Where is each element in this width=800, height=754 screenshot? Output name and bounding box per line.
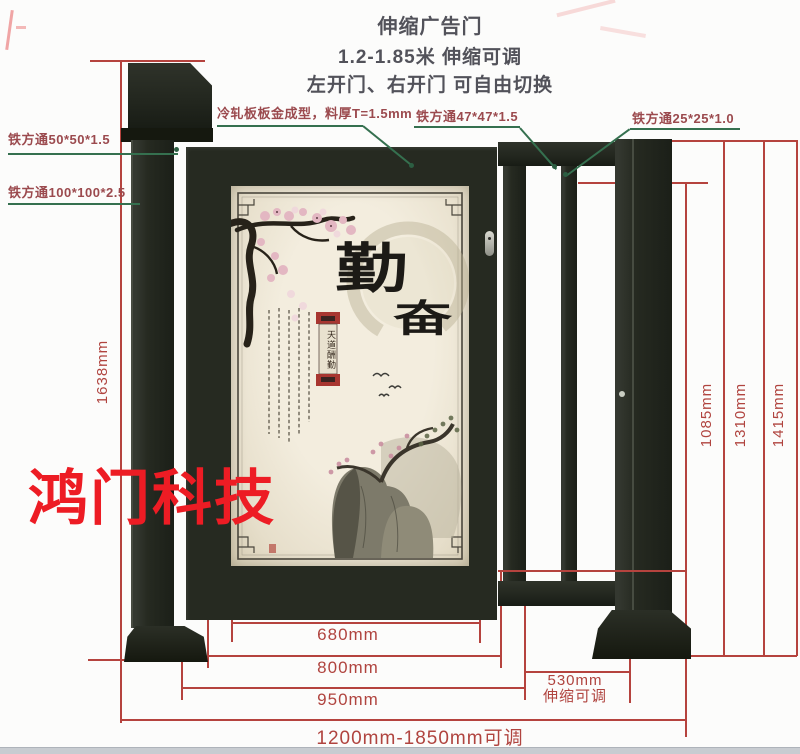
dim-frame-height: 1310mm [731,375,751,455]
label-panel: 冷轧板板金成型，料厚T=1.5mm [217,103,412,122]
leader-tube25-h [630,128,740,130]
dimline-right-edge [796,142,798,656]
right-post-seam [632,139,634,625]
dim-telescopic-width: 530mm [523,673,627,689]
dimtick-right-bottom [683,655,797,657]
leader-dot-tube50 [174,147,179,152]
dimline-1310 [723,142,725,656]
watermark-text: 鸿门科技 [28,450,358,537]
door-lock [485,231,494,256]
right-post-base [592,610,691,659]
seal-mark [269,544,276,553]
birds [373,374,401,397]
dim-poster-width: 680mm [298,625,398,645]
dimtick-left-bottom [88,659,128,661]
calligraphy-columns [269,308,309,442]
artifact-mark [16,26,26,29]
slide-bar-2 [561,166,577,586]
dimline-total-range [120,719,686,721]
dimline-680 [232,622,480,624]
dimline-1415 [763,142,765,656]
label-tube47: 铁方通47*47*1.5 [416,106,518,125]
left-post [131,140,174,628]
dim-total-height: 1415mm [769,375,789,455]
dimline-leaf-bottom-ref [498,570,686,572]
right-post [615,139,672,625]
ribbon-text: 天道酬勤 [318,325,338,375]
dimline-left-vertical [120,62,122,723]
post-bolt [619,391,625,397]
dim-leaf-width: 950mm [298,690,398,710]
range-subtitle: 1.2-1.85米 伸缩可调 [230,42,630,69]
dim-inner-height: 1085mm [697,375,717,455]
leader-panel-h [217,125,363,127]
artifact-mark [5,10,14,50]
dim-left-height: 1638mm [93,332,113,412]
leader-dot-tube25 [563,172,568,177]
advertising-gate-diagram: 伸缩广告门 1.2-1.85米 伸缩可调 左开门、右开门 可自由切换 [0,0,800,754]
slide-top-rail [498,142,618,166]
poster-char-sub: 奋 [393,288,452,342]
dimtick-right-top [668,140,798,142]
dim-telescopic-note: 伸缩可调 [523,689,627,705]
dimtick-left-top [90,60,205,62]
dimline-800 [208,655,501,657]
dim-total-range: 1200mm-1850mm可调 [300,723,540,750]
leader-dot-tube47 [552,164,557,169]
leader-dot-panel [409,163,414,168]
leader-tube50 [8,153,178,155]
dimline-950 [182,687,525,689]
slide-bar-1 [503,166,526,586]
motor-box [128,63,212,129]
slide-bottom-rail [498,581,618,606]
leader-tube100 [8,203,140,205]
label-tube25: 铁方通25*25*1.0 [632,108,734,127]
open-direction-subtitle: 左开门、右开门 可自由切换 [230,70,630,97]
diagram-title: 伸缩广告门 [230,10,630,39]
dim-telescopic: 530mm 伸缩可调 [523,673,627,705]
label-tube100: 铁方通100*100*2.5 [8,182,126,201]
label-tube50: 铁方通50*50*1.5 [8,129,110,148]
dim-door-width: 800mm [298,658,398,678]
left-post-base [124,626,208,662]
leader-tube47-h [414,126,520,128]
